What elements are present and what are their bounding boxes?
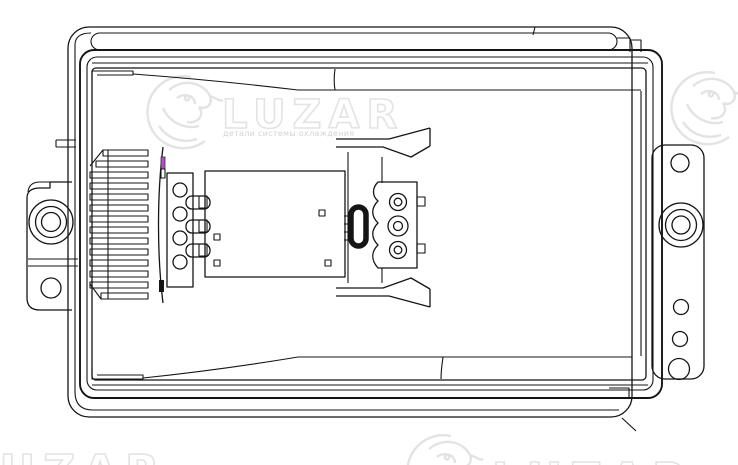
pcb-edge-notch-1 <box>199 196 207 208</box>
lid-top-tick <box>533 27 535 35</box>
watermark-tagline-text: детали системы охлаждения <box>223 129 354 138</box>
right-bracket-hole-mid2 <box>673 332 688 347</box>
terminal-3-outer <box>390 242 407 259</box>
luzar-dragon-icon <box>147 76 223 148</box>
left-mounting-bracket <box>27 140 78 310</box>
right-bracket-hole-top <box>671 154 689 172</box>
technical-drawing-canvas: LUZAR детали системы охлаждения LUZAR LU… <box>0 0 738 465</box>
connector-finger-3 <box>186 244 210 257</box>
panel-bottom-left-tab <box>92 368 143 379</box>
fin-stack <box>90 150 148 299</box>
pcb-board <box>205 171 345 277</box>
lid-inner-left <box>75 33 91 392</box>
plate-side-tab-1 <box>417 197 425 206</box>
terminal-1-outer <box>390 194 407 211</box>
pcb-pad-4 <box>325 260 331 266</box>
connector-highlight-mark <box>161 157 165 169</box>
pcb <box>199 171 345 277</box>
lid-inner-bottom <box>75 392 619 410</box>
connector-finger-1 <box>186 196 210 209</box>
watermark-bottom-center: LUZAR <box>407 435 694 465</box>
left-bracket-upper-tab <box>56 140 76 147</box>
terminal-1-inner <box>394 198 402 206</box>
watermarks: LUZAR детали системы охлаждения LUZAR LU… <box>0 72 738 465</box>
terminal-2-outer <box>388 216 408 236</box>
left-grommet-inner <box>42 213 61 232</box>
panel-top-edge-line <box>133 74 641 90</box>
right-bracket-hole-mid1 <box>674 300 689 315</box>
panel-top-left-tab <box>92 71 133 80</box>
connector-hole-2 <box>173 207 187 221</box>
left-grommet-mid <box>36 207 67 238</box>
capsule-component <box>351 207 366 246</box>
connector-hole-1 <box>173 183 187 197</box>
right-bracket-hole-bottom <box>669 359 690 380</box>
watermark-brand-text-bottom: LUZAR <box>492 454 694 465</box>
resistor-module <box>159 128 431 307</box>
connector-hole-3 <box>173 231 187 245</box>
watermark-brand-text-bottom-left: LUZAR <box>0 446 167 465</box>
connector-finger-2 <box>186 220 210 233</box>
pcb-edge-notch-3 <box>199 244 207 256</box>
pcb-pad-2 <box>214 260 220 266</box>
left-bracket-outline <box>27 182 72 310</box>
module-top-tab <box>161 169 165 178</box>
connector-hole-4 <box>173 255 187 269</box>
terminal-2-inner <box>394 222 403 231</box>
luzar-dragon-icon-bottom <box>407 435 483 465</box>
module-bottom-tab <box>159 280 164 292</box>
drawing-svg: LUZAR детали системы охлаждения LUZAR LU… <box>0 0 738 465</box>
pcb-pad-3 <box>319 210 325 216</box>
right-grommet-inner <box>672 216 690 234</box>
heatsink-fins <box>90 150 148 299</box>
luzar-dragon-icon-top-right <box>671 72 738 144</box>
terminal-3-inner <box>394 246 402 254</box>
right-bracket-plate <box>652 145 704 379</box>
pcb-edge-notch-2 <box>199 220 207 232</box>
left-bracket-hole <box>41 278 61 298</box>
left-bracket-slot <box>28 259 78 266</box>
right-grommet-mid <box>666 210 697 241</box>
connector-strip <box>167 173 210 287</box>
lid-top-rim <box>91 33 617 50</box>
plate-side-tab-2 <box>417 244 425 253</box>
panel-top-tick <box>334 69 335 90</box>
frame-bottom-bracket <box>336 278 430 307</box>
right-mounting-bracket <box>652 145 704 380</box>
panel-bottom-edge-line <box>143 357 632 378</box>
terminal-plate-outline <box>373 182 417 268</box>
terminal-plate <box>373 182 425 268</box>
pcb-pad-1 <box>214 234 220 240</box>
connector-strip-body <box>167 173 193 287</box>
panel-bottom-tick <box>441 357 443 379</box>
